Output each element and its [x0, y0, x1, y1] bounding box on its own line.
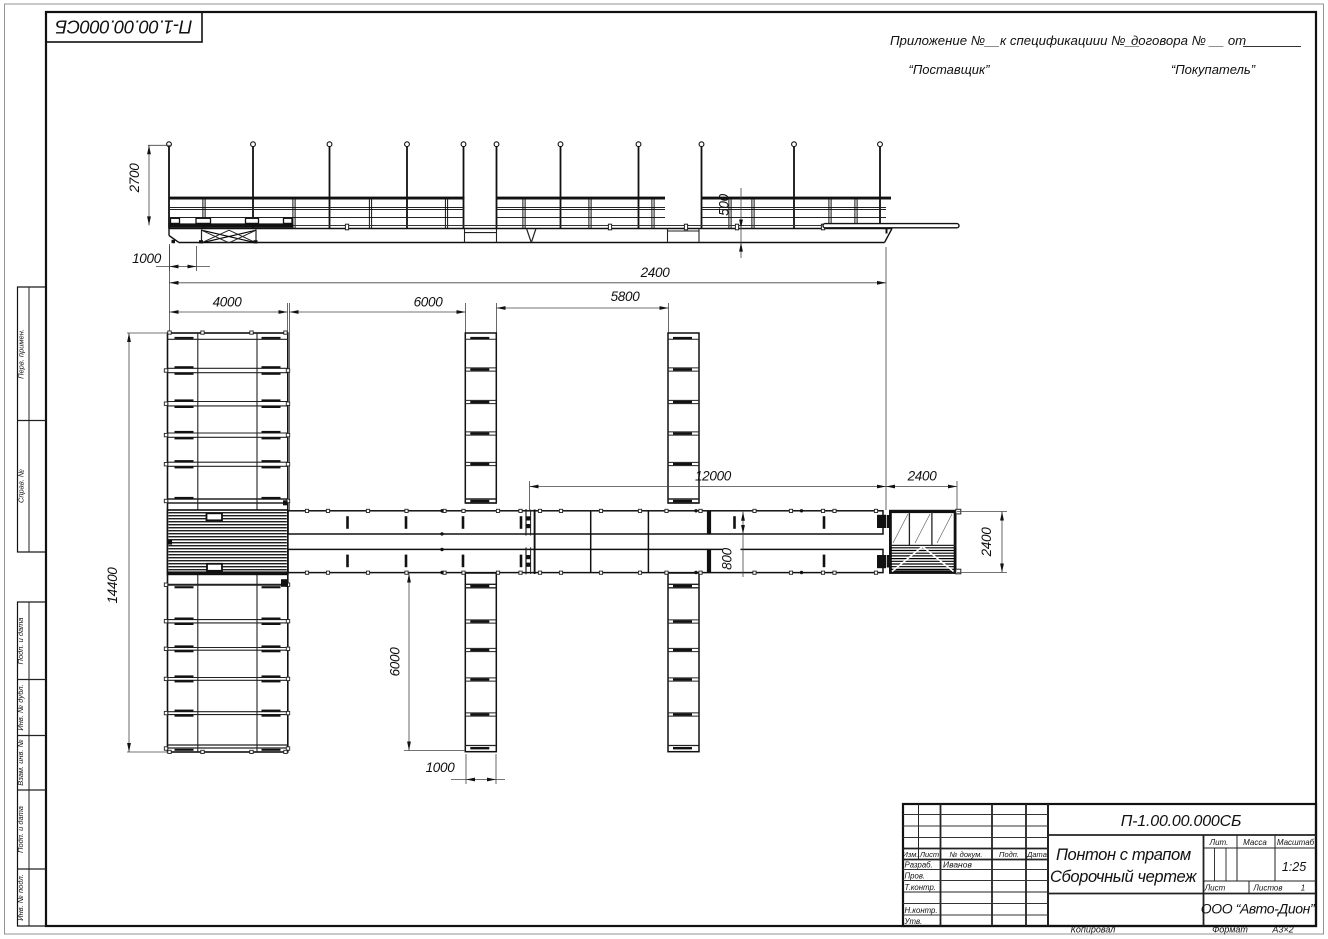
svg-text:Лист: Лист [1204, 884, 1226, 893]
svg-text:Масса: Масса [1243, 838, 1267, 847]
svg-text:2400: 2400 [640, 265, 671, 280]
svg-text:Н.контр.: Н.контр. [905, 906, 938, 915]
svg-text:Лист: Лист [919, 850, 939, 859]
svg-text:1000: 1000 [426, 760, 456, 775]
svg-text:Подп. и дата: Подп. и дата [16, 618, 25, 665]
svg-text:12000: 12000 [695, 469, 732, 484]
svg-text:800: 800 [720, 547, 735, 569]
svg-text:А3×2: А3×2 [1271, 925, 1293, 935]
svg-text:“Покупатель”: “Покупатель” [1171, 62, 1256, 77]
svg-text:500: 500 [717, 193, 732, 215]
svg-text:4000: 4000 [213, 295, 243, 310]
svg-text:“Поставщик”: “Поставщик” [909, 62, 991, 77]
svg-text:1:25: 1:25 [1282, 860, 1306, 874]
svg-text:14400: 14400 [105, 567, 120, 604]
svg-text:П-1.00.00.000СБ: П-1.00.00.000СБ [1121, 813, 1241, 830]
svg-text:Т.контр.: Т.контр. [905, 883, 936, 892]
svg-text:6000: 6000 [388, 647, 403, 677]
svg-text:Листов: Листов [1252, 884, 1282, 893]
svg-text:1000: 1000 [132, 251, 162, 266]
svg-text:1: 1 [1301, 884, 1305, 893]
svg-text:2400: 2400 [907, 469, 938, 484]
svg-text:Подп. и дата: Подп. и дата [16, 806, 25, 853]
svg-text:2700: 2700 [127, 163, 142, 194]
svg-text:Инв. № дубл.: Инв. № дубл. [16, 684, 25, 730]
svg-text:Разраб.: Разраб. [905, 861, 933, 870]
svg-text:Масштаб: Масштаб [1277, 838, 1315, 847]
svg-text:5800: 5800 [611, 289, 641, 304]
svg-text:Копировал: Копировал [1071, 925, 1116, 935]
svg-text:Взам. инв. №: Взам. инв. № [16, 739, 25, 785]
svg-text:Формат: Формат [1212, 925, 1248, 935]
svg-text:Понтон с трапом: Понтон с трапом [1056, 846, 1191, 864]
svg-text:Иванов: Иванов [943, 860, 972, 870]
svg-text:Лит.: Лит. [1209, 838, 1229, 847]
svg-text:П-1.00.00.000СБ: П-1.00.00.000СБ [55, 17, 192, 38]
svg-text:к спецификациии №__: к спецификациии №__ [1000, 33, 1140, 48]
svg-text:Справ. №: Справ. № [17, 469, 26, 503]
svg-text:Перв. примен.: Перв. примен. [17, 329, 26, 379]
svg-text:Сборочный чертеж: Сборочный чертеж [1050, 868, 1197, 886]
svg-text:2400: 2400 [979, 527, 994, 558]
svg-text:договора № __ от: договора № __ от [1131, 33, 1246, 48]
svg-text:6000: 6000 [414, 295, 444, 310]
svg-text:Инв. № подл.: Инв. № подл. [16, 874, 25, 921]
svg-text:Пров.: Пров. [905, 872, 926, 881]
svg-text:Изм.: Изм. [903, 850, 919, 859]
svg-text:Дата: Дата [1026, 850, 1047, 859]
svg-text:№ докум.: № докум. [949, 850, 982, 859]
svg-text:Утв.: Утв. [904, 917, 923, 926]
svg-text:ООО “Авто-Дион”: ООО “Авто-Дион” [1201, 901, 1316, 917]
svg-text:Приложение №__: Приложение №__ [890, 33, 1000, 48]
svg-text:Подп.: Подп. [999, 850, 1019, 859]
